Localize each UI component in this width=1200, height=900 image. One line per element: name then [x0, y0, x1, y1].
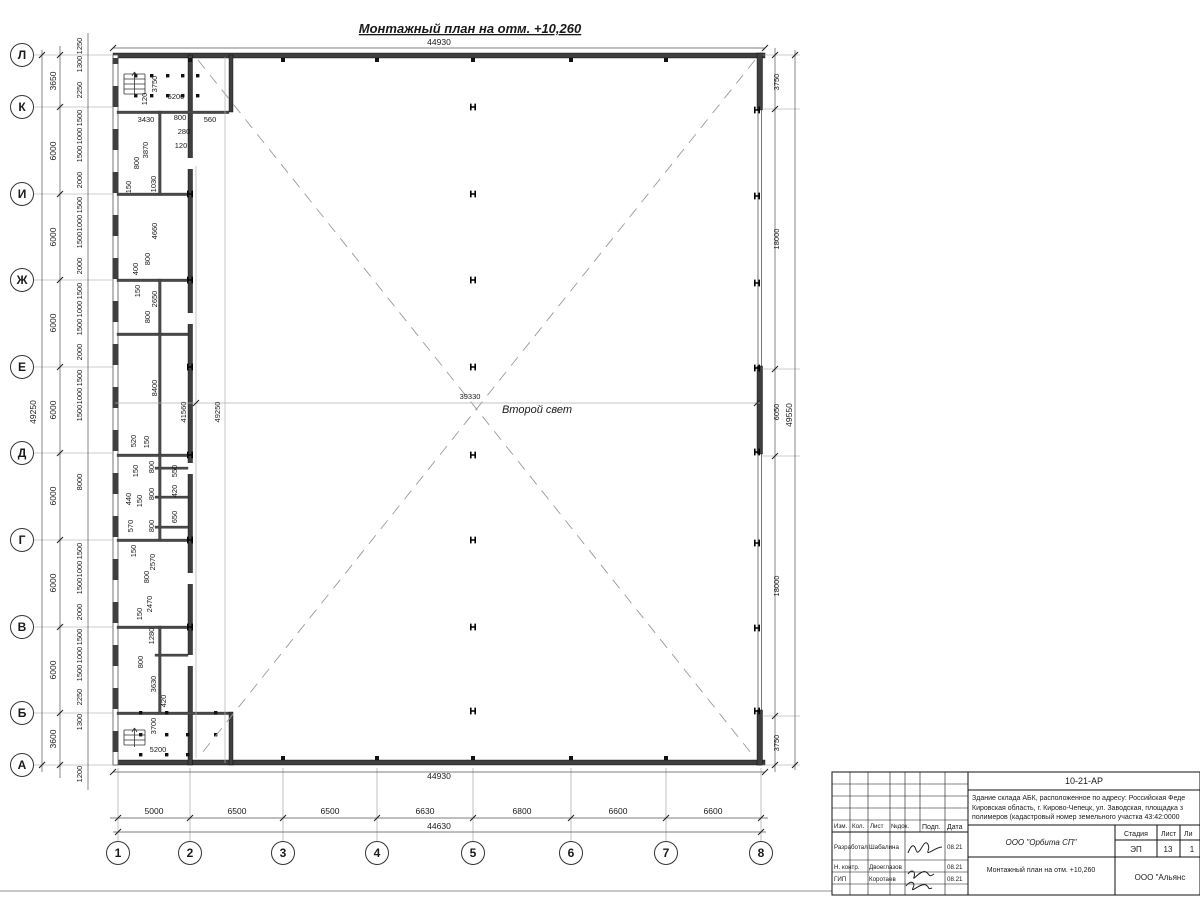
dim-label: 150	[129, 545, 138, 558]
dim-label: 400	[131, 263, 140, 276]
dim-label: 120	[175, 141, 188, 150]
grid-col-bubble: 6	[568, 846, 575, 860]
dim-label: 18000	[772, 576, 781, 597]
sheets-label: Ли	[1184, 831, 1193, 838]
col-spacing-dims: 5000 6500 6500 6630 6800 6600 6600	[145, 806, 723, 816]
dim-label: 800	[142, 571, 151, 584]
dim-label: 1000	[75, 647, 84, 664]
dim-label: 5200	[168, 92, 185, 101]
doc-number: 10-21-АР	[1065, 776, 1103, 786]
dim-label: 6050	[772, 404, 781, 421]
dim-label: 650	[170, 511, 179, 524]
dim-label: 44930	[427, 771, 451, 781]
dim-label: 2000	[75, 258, 84, 275]
dim-label: 1280	[147, 628, 156, 645]
stamp-header-kol: Кол.	[852, 823, 865, 830]
dim-label: 2000	[75, 344, 84, 361]
project-description-line: Кировская область, г. Кирово-Чепецк, ул.…	[972, 804, 1183, 812]
dim-label: 1500	[75, 319, 84, 336]
dim-label: 1500	[75, 197, 84, 214]
dim-label: 420	[159, 695, 168, 708]
dim-label: 6000	[48, 400, 58, 419]
grid-col-bubble: 2	[187, 846, 194, 860]
dim-label: 1500	[75, 543, 84, 560]
dim-label: 44930	[427, 37, 451, 47]
dim-label: 6000	[48, 660, 58, 679]
grid-col-bubble: 7	[663, 846, 670, 860]
dim-label: 1500	[75, 665, 84, 682]
project-description-line: полимеров (кадастровый номер земельного …	[972, 813, 1180, 821]
dim-label: 1500	[75, 146, 84, 163]
dim-label: 6500	[321, 806, 340, 816]
stamp-role: Н. контр.	[834, 864, 860, 871]
sheets-value: 1	[1190, 845, 1195, 854]
dim-label: 2570	[148, 554, 157, 571]
dim-label: 18000	[772, 229, 781, 250]
dim-label: 3870	[141, 142, 150, 159]
dim-label: 800	[143, 253, 152, 266]
dim-label: 800	[174, 113, 187, 122]
dim-label: 1000	[75, 561, 84, 578]
right-spacing-dims: 3750 18000 6050 18000 3750	[772, 74, 781, 752]
stamp-date: 08.21	[947, 844, 963, 851]
grid-row-bubble: Д	[18, 446, 27, 460]
dim-label: 1250	[75, 38, 84, 55]
grid-row-bubble: К	[18, 100, 26, 114]
grid-row-bubble: Б	[18, 706, 27, 720]
roof-bracing	[198, 60, 755, 758]
dim-label: 3750	[150, 76, 159, 93]
grid-row-bubble: Ж	[16, 273, 28, 287]
dim-label: 1500	[75, 578, 84, 595]
stamp-header-data: Дата	[947, 824, 963, 831]
dim-label: 1500	[75, 629, 84, 646]
dim-label: 2000	[75, 604, 84, 621]
dim-label: 4660	[150, 223, 159, 240]
stamp-date: 08.21	[947, 876, 963, 883]
grid-row-bubble: Е	[18, 360, 26, 374]
dim-label: 150	[135, 608, 144, 621]
dim-label: 2470	[145, 596, 154, 613]
dim-label: 120	[140, 93, 149, 106]
dim-label: 5000	[145, 806, 164, 816]
org-name: ООО "Орбита СП"	[1005, 838, 1077, 847]
dim-label: 49250	[28, 400, 38, 424]
dim-label: 49550	[784, 403, 794, 427]
dim-label: 800	[147, 461, 156, 474]
dim-label: 6600	[609, 806, 628, 816]
dim-label: 3750	[772, 735, 781, 752]
project-description-line: Здание склада АБК, расположенное по адре…	[972, 794, 1185, 802]
stamp-header-podp: Подп.	[922, 824, 941, 831]
grid-row-bubble: В	[18, 620, 27, 634]
stamp-date: 08.21	[947, 864, 963, 871]
dim-label: 800	[147, 520, 156, 533]
dim-label: 6000	[48, 486, 58, 505]
dim-label: 1000	[75, 128, 84, 145]
dim-label: 150	[124, 181, 133, 194]
dim-label: 2000	[75, 172, 84, 189]
dim-label: 1200	[75, 766, 84, 783]
sheet-value: 13	[1164, 845, 1173, 854]
sheet-label: Лист	[1161, 831, 1177, 838]
dim-label: 2250	[75, 689, 84, 706]
signature-scribbles	[906, 843, 942, 890]
dim-label: 3430	[138, 115, 155, 124]
sheet-title: Монтажный план на отм. +10,260	[987, 866, 1096, 874]
dim-label: 560	[204, 115, 217, 124]
dim-label: 2650	[150, 291, 159, 308]
dim-label: 6630	[416, 806, 435, 816]
row-spacing-dims: 3650 6000 6000 6000 6000 6000 6000 6000 …	[48, 71, 58, 748]
dim-label: 150	[142, 436, 151, 449]
steel-columns	[188, 104, 759, 715]
grid-col-bubble: 1	[115, 846, 122, 860]
dim-label: 49250	[213, 402, 222, 423]
dim-label: 1500	[75, 232, 84, 249]
dim-label: 550	[170, 465, 179, 478]
dim-label: 39330	[460, 392, 481, 401]
stair-bottom-left	[124, 728, 145, 747]
dim-label: 6000	[48, 227, 58, 246]
dim-label: 1500	[75, 370, 84, 387]
stamp-header-ndoc: №док.	[891, 823, 909, 830]
dim-label: 800	[147, 488, 156, 501]
grid-row-bubble: Г	[19, 533, 26, 547]
grid-col-bubble: 3	[280, 846, 287, 860]
left-fine-dims: 1250 1300 2250 1500 1000 1500 2000 1500 …	[75, 38, 84, 783]
dim-label: 570	[126, 520, 135, 533]
dim-label: 44630	[427, 821, 451, 831]
dim-label: 1500	[75, 405, 84, 422]
dim-label: 1000	[75, 301, 84, 318]
dim-label: 150	[133, 285, 142, 298]
dim-label: 6000	[48, 573, 58, 592]
dim-label: 420	[170, 485, 179, 498]
dim-label: 1500	[75, 110, 84, 127]
dim-label: 3700	[149, 718, 158, 735]
dim-label: 1000	[75, 388, 84, 405]
dim-label: 800	[132, 157, 141, 170]
stamp-header-izm: Изм.	[834, 823, 848, 830]
installation-plan-drawing: Монтажный план на отм. +10,260	[0, 0, 1200, 900]
dim-label: 2250	[75, 82, 84, 99]
dim-label: 1030	[149, 176, 158, 193]
dim-label: 280	[178, 127, 191, 136]
dim-label: 8400	[150, 380, 159, 397]
dim-label: 6500	[228, 806, 247, 816]
dim-label: 440	[124, 493, 133, 506]
stamp-role: ГИП	[834, 876, 846, 883]
dim-label: 150	[135, 495, 144, 508]
dim-label: 6600	[704, 806, 723, 816]
dim-label: 3650	[48, 71, 58, 90]
dim-label: 1300	[75, 56, 84, 73]
dim-label: 150	[131, 465, 140, 478]
stamp-name: Коротаев	[869, 876, 896, 883]
dim-label: 520	[129, 435, 138, 448]
title-block: Изм. Кол. Лист №док. Подп. Дата Разработ…	[832, 772, 1200, 895]
stage-label: Стадия	[1124, 831, 1148, 838]
grid-col-bubble: 4	[374, 846, 381, 860]
stamp-header-list: Лист	[870, 823, 884, 830]
grid-row-bubble: Л	[18, 48, 26, 62]
org2-name: ООО "Альянс	[1135, 873, 1186, 882]
room-label: Второй свет	[502, 404, 572, 416]
dim-label: 800	[143, 311, 152, 324]
stamp-name: Двоеглазов	[869, 864, 903, 871]
interior-reference-lines	[115, 57, 760, 763]
stamp-name: Шабалина	[869, 844, 899, 851]
grid-col-bubbles: 1 2 3 4 5 6 7 8	[107, 842, 773, 865]
dim-label: 1500	[75, 283, 84, 300]
dim-label: 800	[136, 656, 145, 669]
grid-row-bubble: А	[18, 758, 27, 772]
dim-label: 3600	[48, 729, 58, 748]
grid-col-bubble: 8	[758, 846, 765, 860]
dim-label: 3750	[772, 74, 781, 91]
dim-label: 5200	[150, 745, 167, 754]
dim-label: 3630	[149, 676, 158, 693]
dim-label: 6800	[513, 806, 532, 816]
dim-label: 1300	[75, 714, 84, 731]
stamp-role: Разработал	[834, 844, 868, 851]
floor-plan-walls	[113, 53, 766, 765]
dim-label: 6000	[48, 313, 58, 332]
grid-col-bubble: 5	[470, 846, 477, 860]
grid-row-bubble: И	[18, 187, 27, 201]
page-title: Монтажный план на отм. +10,260	[359, 21, 582, 36]
stair-top-left	[124, 72, 145, 96]
dim-label: 8000	[75, 474, 84, 491]
dim-label: 1000	[75, 215, 84, 232]
wall-column-marks	[188, 58, 668, 760]
stage-value: ЭП	[1130, 845, 1142, 854]
dim-label: 41560	[179, 402, 188, 423]
dim-label: 6000	[48, 141, 58, 160]
